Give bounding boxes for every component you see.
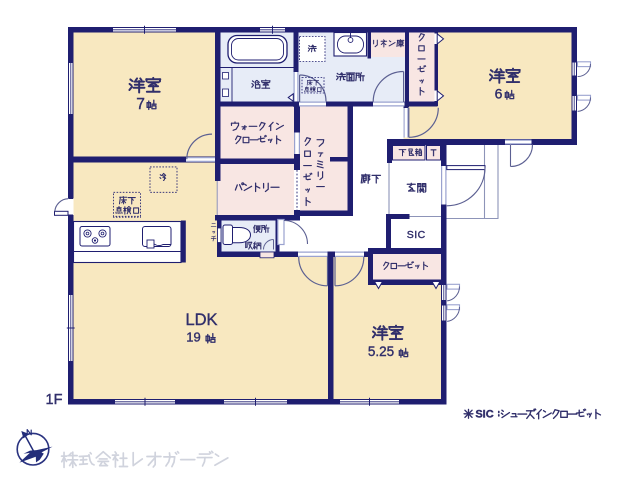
- svg-text:1F: 1F: [46, 392, 63, 408]
- svg-text:7: 7: [136, 96, 145, 113]
- svg-text:SIC: SIC: [407, 229, 426, 241]
- svg-text:19: 19: [186, 330, 200, 345]
- svg-text:T: T: [431, 148, 437, 159]
- svg-text:5.25: 5.25: [368, 344, 394, 359]
- svg-text:SIC: SIC: [475, 409, 493, 421]
- svg-text:LDK: LDK: [185, 311, 217, 329]
- svg-text:6: 6: [495, 85, 503, 101]
